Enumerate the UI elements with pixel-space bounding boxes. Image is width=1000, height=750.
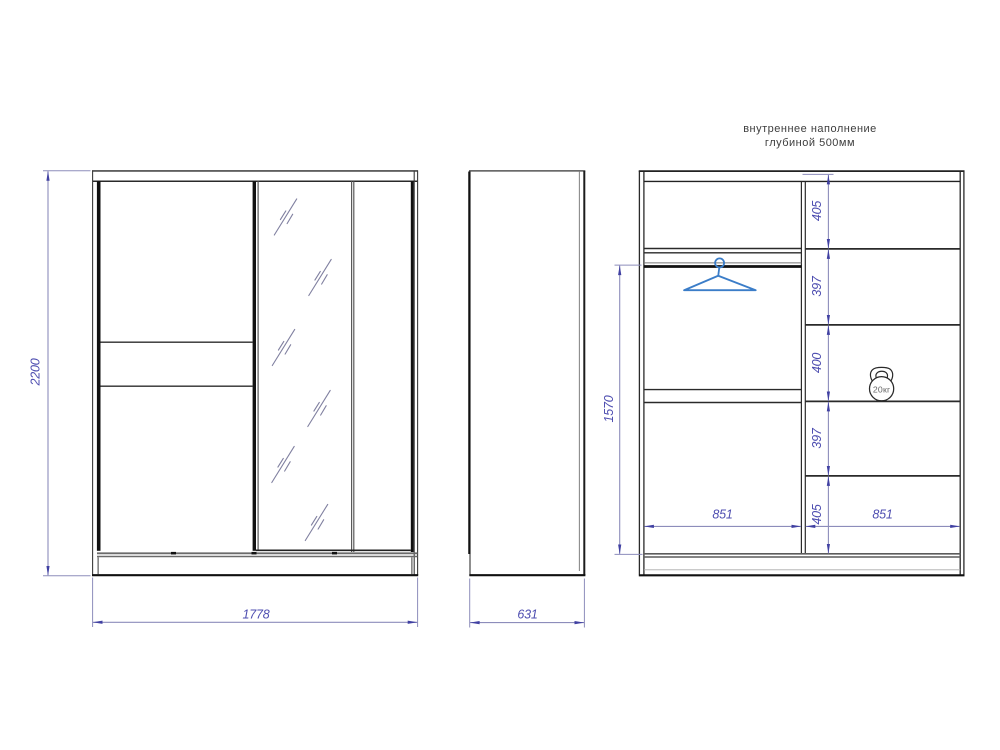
- svg-text:631: 631: [517, 608, 537, 622]
- svg-text:20кг: 20кг: [873, 384, 890, 394]
- svg-text:397: 397: [810, 275, 824, 297]
- svg-text:851: 851: [712, 508, 732, 522]
- svg-text:глубиной 500мм: глубиной 500мм: [765, 137, 855, 149]
- svg-text:397: 397: [810, 427, 824, 449]
- svg-text:405: 405: [810, 201, 824, 222]
- svg-text:2200: 2200: [29, 358, 43, 386]
- svg-text:851: 851: [872, 508, 892, 522]
- svg-text:405: 405: [810, 504, 824, 525]
- svg-text:400: 400: [810, 353, 824, 374]
- svg-text:1570: 1570: [602, 395, 616, 422]
- svg-text:1778: 1778: [242, 607, 269, 621]
- svg-text:внутреннее наполнение: внутреннее наполнение: [743, 123, 877, 135]
